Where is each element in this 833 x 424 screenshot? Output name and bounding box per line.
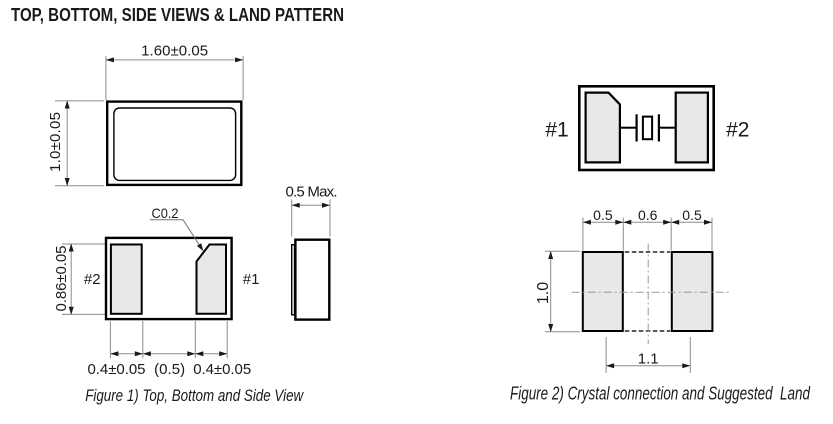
svg-text:#1: #1 [545,119,568,142]
svg-text:0.86±0.05: 0.86±0.05 [53,246,70,312]
svg-text:#2: #2 [726,119,749,142]
svg-text:Figure 1) Top, Bottom and Side: Figure 1) Top, Bottom and Side View [85,386,304,405]
svg-text:1.60±0.05: 1.60±0.05 [141,43,208,60]
svg-text:1.0±0.05: 1.0±0.05 [47,112,64,172]
svg-text:0.5 Max.: 0.5 Max. [286,183,338,200]
svg-text:TOP, BOTTOM, SIDE VIEWS & LAND: TOP, BOTTOM, SIDE VIEWS & LAND PATTERN [11,5,344,25]
svg-text:0.6: 0.6 [638,207,658,223]
svg-text:1.1: 1.1 [638,351,659,368]
svg-text:Figure 2) Crystal connection a: Figure 2) Crystal connection and Suggest… [510,383,811,403]
svg-text:0.5: 0.5 [593,207,613,223]
svg-text:0.5: 0.5 [682,207,702,223]
svg-text:0.4±0.05: 0.4±0.05 [193,361,251,378]
svg-text:0.4±0.05: 0.4±0.05 [88,361,146,378]
svg-text:#1: #1 [243,271,260,288]
svg-text:C0.2: C0.2 [152,205,179,221]
svg-text:1.0: 1.0 [535,282,552,304]
svg-text:(0.5): (0.5) [154,361,185,378]
svg-text:#2: #2 [84,271,101,288]
